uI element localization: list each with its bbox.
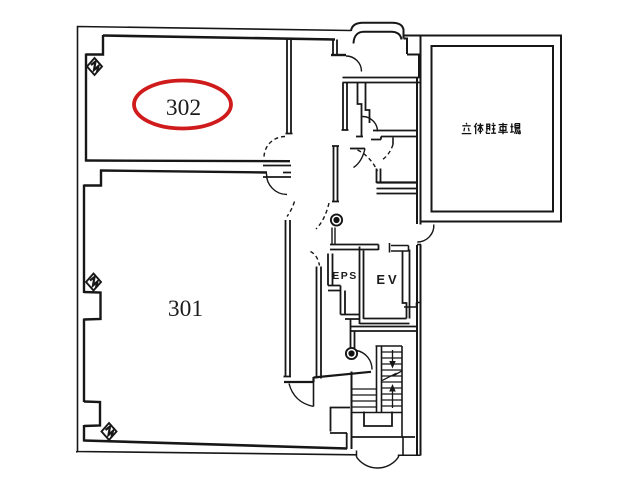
svg-text:EPS: EPS xyxy=(332,270,358,282)
svg-text:301: 301 xyxy=(168,296,203,322)
svg-text:EV: EV xyxy=(376,272,399,287)
svg-text:302: 302 xyxy=(166,95,201,121)
